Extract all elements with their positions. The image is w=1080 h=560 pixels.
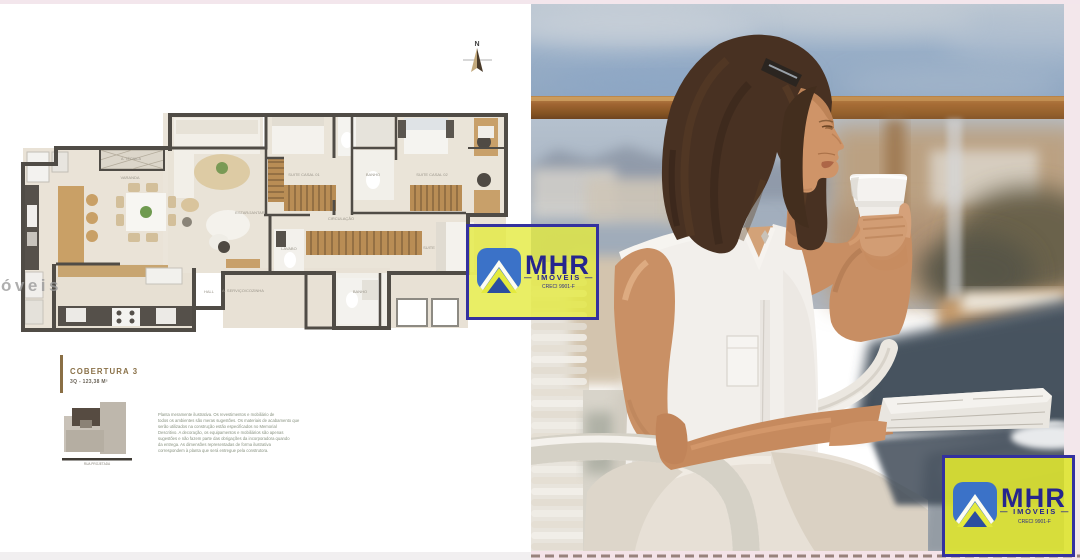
svg-text:LAVABO: LAVABO [281, 246, 296, 251]
svg-text:RUA PROJETADA: RUA PROJETADA [84, 462, 111, 466]
svg-text:SUITE: SUITE [423, 245, 435, 250]
svg-text:COBERTURA 3: COBERTURA 3 [70, 367, 138, 376]
svg-text:da entrega. As dimensões repre: da entrega. As dimensões representadas d… [158, 442, 272, 447]
svg-text:correspondem à planta que será: correspondem à planta que será entregue … [158, 448, 268, 453]
svg-text:serão utilizados na construção: serão utilizados na construção estão esp… [158, 424, 277, 429]
svg-text:SUITE CASAL 01: SUITE CASAL 01 [288, 172, 320, 177]
svg-text:todos os ambientes são meras s: todos os ambientes são meras sugestões. … [158, 418, 300, 423]
svg-text:3Q - 123,38 M²: 3Q - 123,38 M² [70, 379, 108, 385]
svg-text:N: N [474, 41, 479, 48]
svg-text:SUITE CASAL 02: SUITE CASAL 02 [416, 172, 448, 177]
svg-text:BANHO: BANHO [366, 172, 380, 177]
svg-text:VARANDA: VARANDA [120, 175, 139, 180]
svg-text:BANHO: BANHO [353, 289, 367, 294]
svg-text:A. SERVIÇO/COZINHA: A. SERVIÇO/COZINHA [222, 288, 264, 293]
svg-text:ESTAR/JANTAR: ESTAR/JANTAR [235, 210, 265, 215]
svg-text:A. TÉCNICA: A. TÉCNICA [121, 156, 142, 161]
svg-text:HALL: HALL [204, 289, 215, 294]
svg-text:sugestões e não fazem parte da: sugestões e não fazem parte das obrigaçõ… [158, 436, 290, 441]
svg-text:Descritivo. A decoração, os eq: Descritivo. A decoração, os equipamentos… [158, 430, 283, 435]
svg-text:Planta meramente ilustrativa.: Planta meramente ilustrativa. Os revesti… [158, 412, 275, 417]
svg-text:óveis: óveis [1, 276, 62, 295]
svg-text:CIRCULAÇÃO: CIRCULAÇÃO [328, 216, 354, 221]
